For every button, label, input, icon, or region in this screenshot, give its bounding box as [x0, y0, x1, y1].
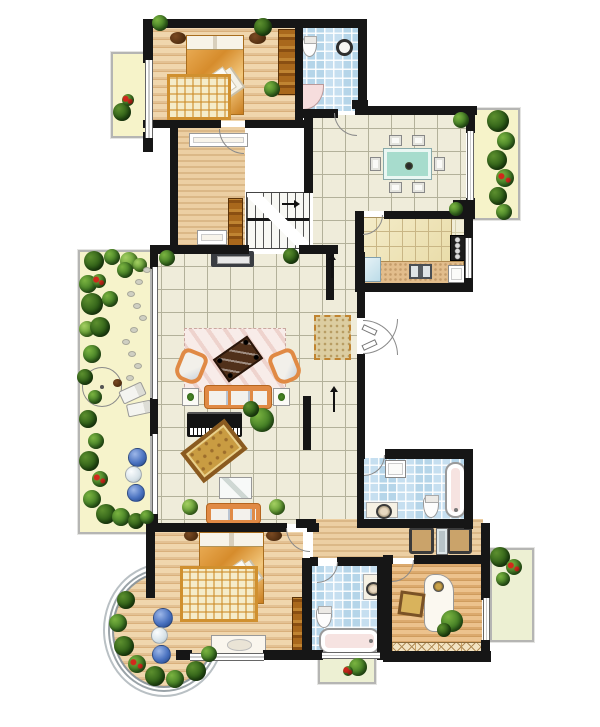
plant: [453, 112, 469, 128]
wall: [146, 523, 287, 532]
dining-chair: [370, 157, 381, 171]
stepping-stone: [122, 339, 130, 345]
wall: [357, 456, 364, 522]
dining-table: [384, 149, 431, 179]
wall: [296, 519, 316, 528]
plant: [254, 18, 272, 36]
window: [322, 652, 380, 659]
wall: [302, 558, 312, 660]
doormat: [314, 315, 351, 360]
bathtub: [445, 462, 466, 518]
window: [483, 598, 490, 640]
stepping-stone: [126, 375, 134, 381]
plant: [496, 204, 512, 220]
direction-arrow: [331, 258, 333, 278]
wall: [355, 283, 473, 292]
wardrobe: [278, 29, 296, 95]
wall: [383, 556, 392, 662]
wall: [384, 211, 456, 219]
plant: [92, 471, 108, 487]
wall: [170, 127, 178, 249]
plant: [437, 623, 451, 637]
kitchen-sink: [409, 264, 432, 279]
side-table: [182, 388, 199, 406]
stepping-stone: [130, 327, 138, 333]
stepping-stone: [134, 363, 142, 369]
dining-chair: [412, 182, 425, 193]
wall: [296, 109, 338, 118]
plant: [145, 666, 165, 686]
plant: [343, 666, 353, 676]
plant: [84, 251, 104, 271]
white-sphere-ornament: [125, 466, 142, 483]
wall: [295, 24, 303, 122]
plant: [88, 390, 102, 404]
garden-table: [113, 379, 122, 387]
wall: [143, 120, 221, 128]
blue-sphere-ornament: [152, 645, 171, 664]
floor-plan: [0, 0, 600, 727]
wall: [303, 396, 311, 450]
wall: [464, 449, 473, 529]
blue-sphere-ornament: [153, 608, 173, 628]
plant: [166, 670, 184, 688]
stepping-stone: [133, 303, 141, 309]
plant: [201, 646, 217, 662]
plant: [487, 110, 509, 132]
bench-sofa: [206, 503, 261, 524]
plant: [152, 15, 168, 31]
dresser: [211, 635, 266, 654]
bathtub: [319, 628, 380, 654]
window: [152, 267, 158, 399]
dressing-chair: [409, 527, 434, 554]
dining-chair: [434, 157, 445, 171]
plant: [489, 187, 507, 205]
wall: [357, 252, 365, 318]
kitchen-cabinet: [448, 265, 465, 283]
plant: [243, 401, 259, 417]
wall: [383, 651, 491, 662]
plant: [269, 499, 285, 515]
plant: [117, 591, 135, 609]
wash-basin: [336, 39, 353, 56]
plant: [81, 293, 103, 315]
plant: [264, 81, 280, 97]
plant: [112, 508, 130, 526]
side-table: [273, 388, 290, 406]
wall: [150, 245, 158, 269]
picture-frame: [397, 590, 425, 617]
wall: [358, 19, 367, 103]
hall-shelf: [228, 198, 243, 246]
plant: [83, 345, 101, 363]
plant: [79, 410, 97, 428]
white-sphere-ornament: [151, 627, 168, 644]
sofa: [204, 385, 272, 409]
stepping-stone: [128, 351, 136, 357]
stepping-stone: [135, 279, 143, 285]
plant: [109, 614, 127, 632]
wall: [357, 354, 365, 454]
stove: [450, 235, 465, 261]
direction-arrow: [333, 390, 335, 412]
window: [465, 238, 472, 278]
plant: [283, 248, 299, 264]
window: [145, 60, 153, 138]
plant: [506, 559, 522, 575]
wall: [414, 555, 490, 564]
dining-chair: [412, 135, 425, 146]
dressing-chair: [447, 527, 472, 554]
stepping-stone: [139, 315, 147, 321]
plant: [77, 369, 93, 385]
plant: [159, 250, 175, 266]
vanity-basin: [366, 502, 398, 518]
glass-table: [219, 477, 252, 499]
window: [467, 131, 474, 200]
plant: [140, 510, 154, 524]
greek-key-rug: [167, 74, 231, 120]
plant: [186, 661, 206, 681]
wall: [357, 519, 473, 528]
dining-chair: [389, 182, 402, 193]
plant: [182, 499, 198, 515]
vanity-mirror: [436, 528, 448, 555]
plant: [128, 655, 146, 673]
wall: [304, 650, 323, 660]
plant: [496, 169, 514, 187]
plant: [449, 202, 463, 216]
direction-arrow: [282, 203, 296, 205]
plant: [497, 132, 515, 150]
plant: [88, 433, 104, 449]
plant: [83, 490, 101, 508]
greek-key-rug: [180, 566, 258, 622]
plant: [104, 249, 120, 265]
wall: [146, 523, 155, 598]
plant: [117, 262, 133, 278]
plant: [114, 636, 134, 656]
window: [152, 434, 158, 514]
plant: [102, 291, 118, 307]
washer: [385, 460, 406, 478]
plant: [487, 150, 507, 170]
stepping-stone: [127, 291, 135, 297]
plant: [122, 94, 134, 106]
shoe-cabinet: [197, 230, 227, 245]
blue-sphere-ornament: [127, 484, 145, 502]
wall: [150, 398, 158, 436]
nightstand: [170, 32, 186, 44]
stepping-stone: [143, 267, 151, 273]
plant: [79, 451, 99, 471]
plant: [90, 317, 110, 337]
blue-sphere-ornament: [128, 448, 147, 467]
wall: [481, 567, 490, 600]
wall: [385, 449, 473, 459]
wall: [304, 109, 313, 193]
plant: [496, 572, 510, 586]
plant: [92, 274, 106, 288]
dining-chair: [389, 135, 402, 146]
